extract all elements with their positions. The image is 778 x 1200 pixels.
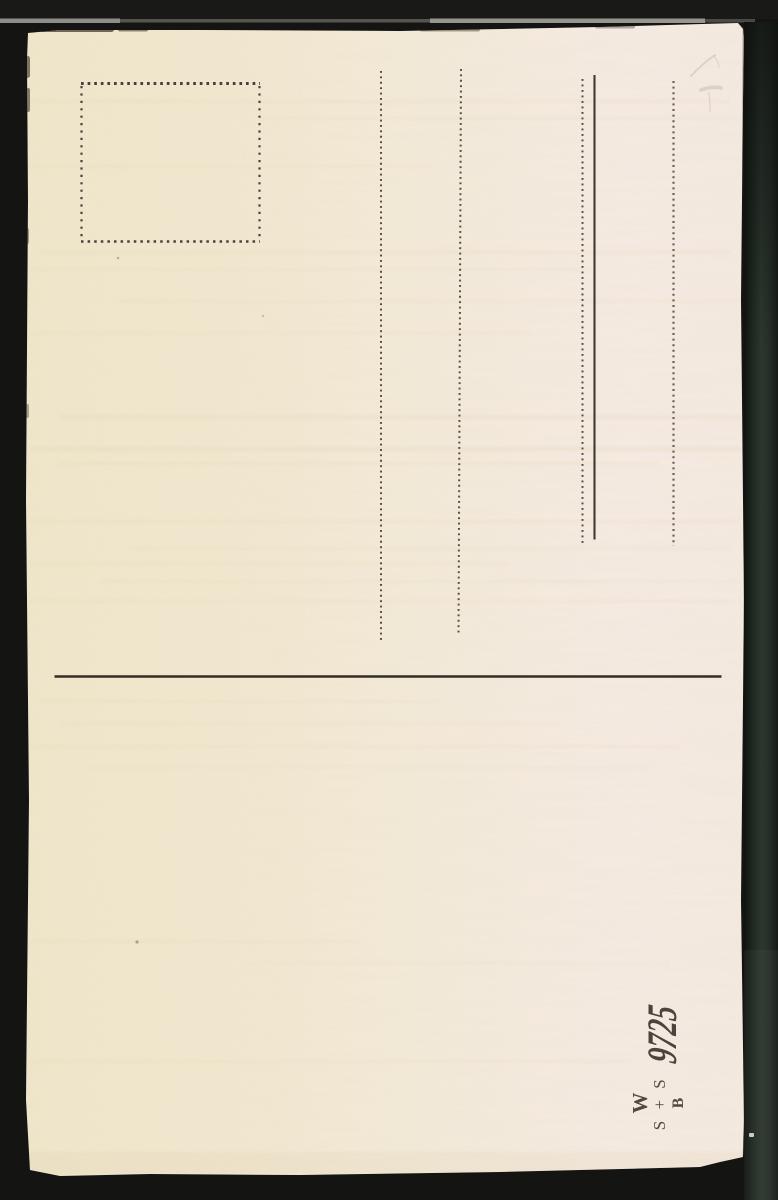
svg-text:B: B xyxy=(670,1097,687,1108)
svg-text:S + S: S + S xyxy=(650,1076,669,1131)
svg-text:9725: 9725 xyxy=(639,1002,685,1066)
svg-text:W: W xyxy=(628,1093,652,1114)
